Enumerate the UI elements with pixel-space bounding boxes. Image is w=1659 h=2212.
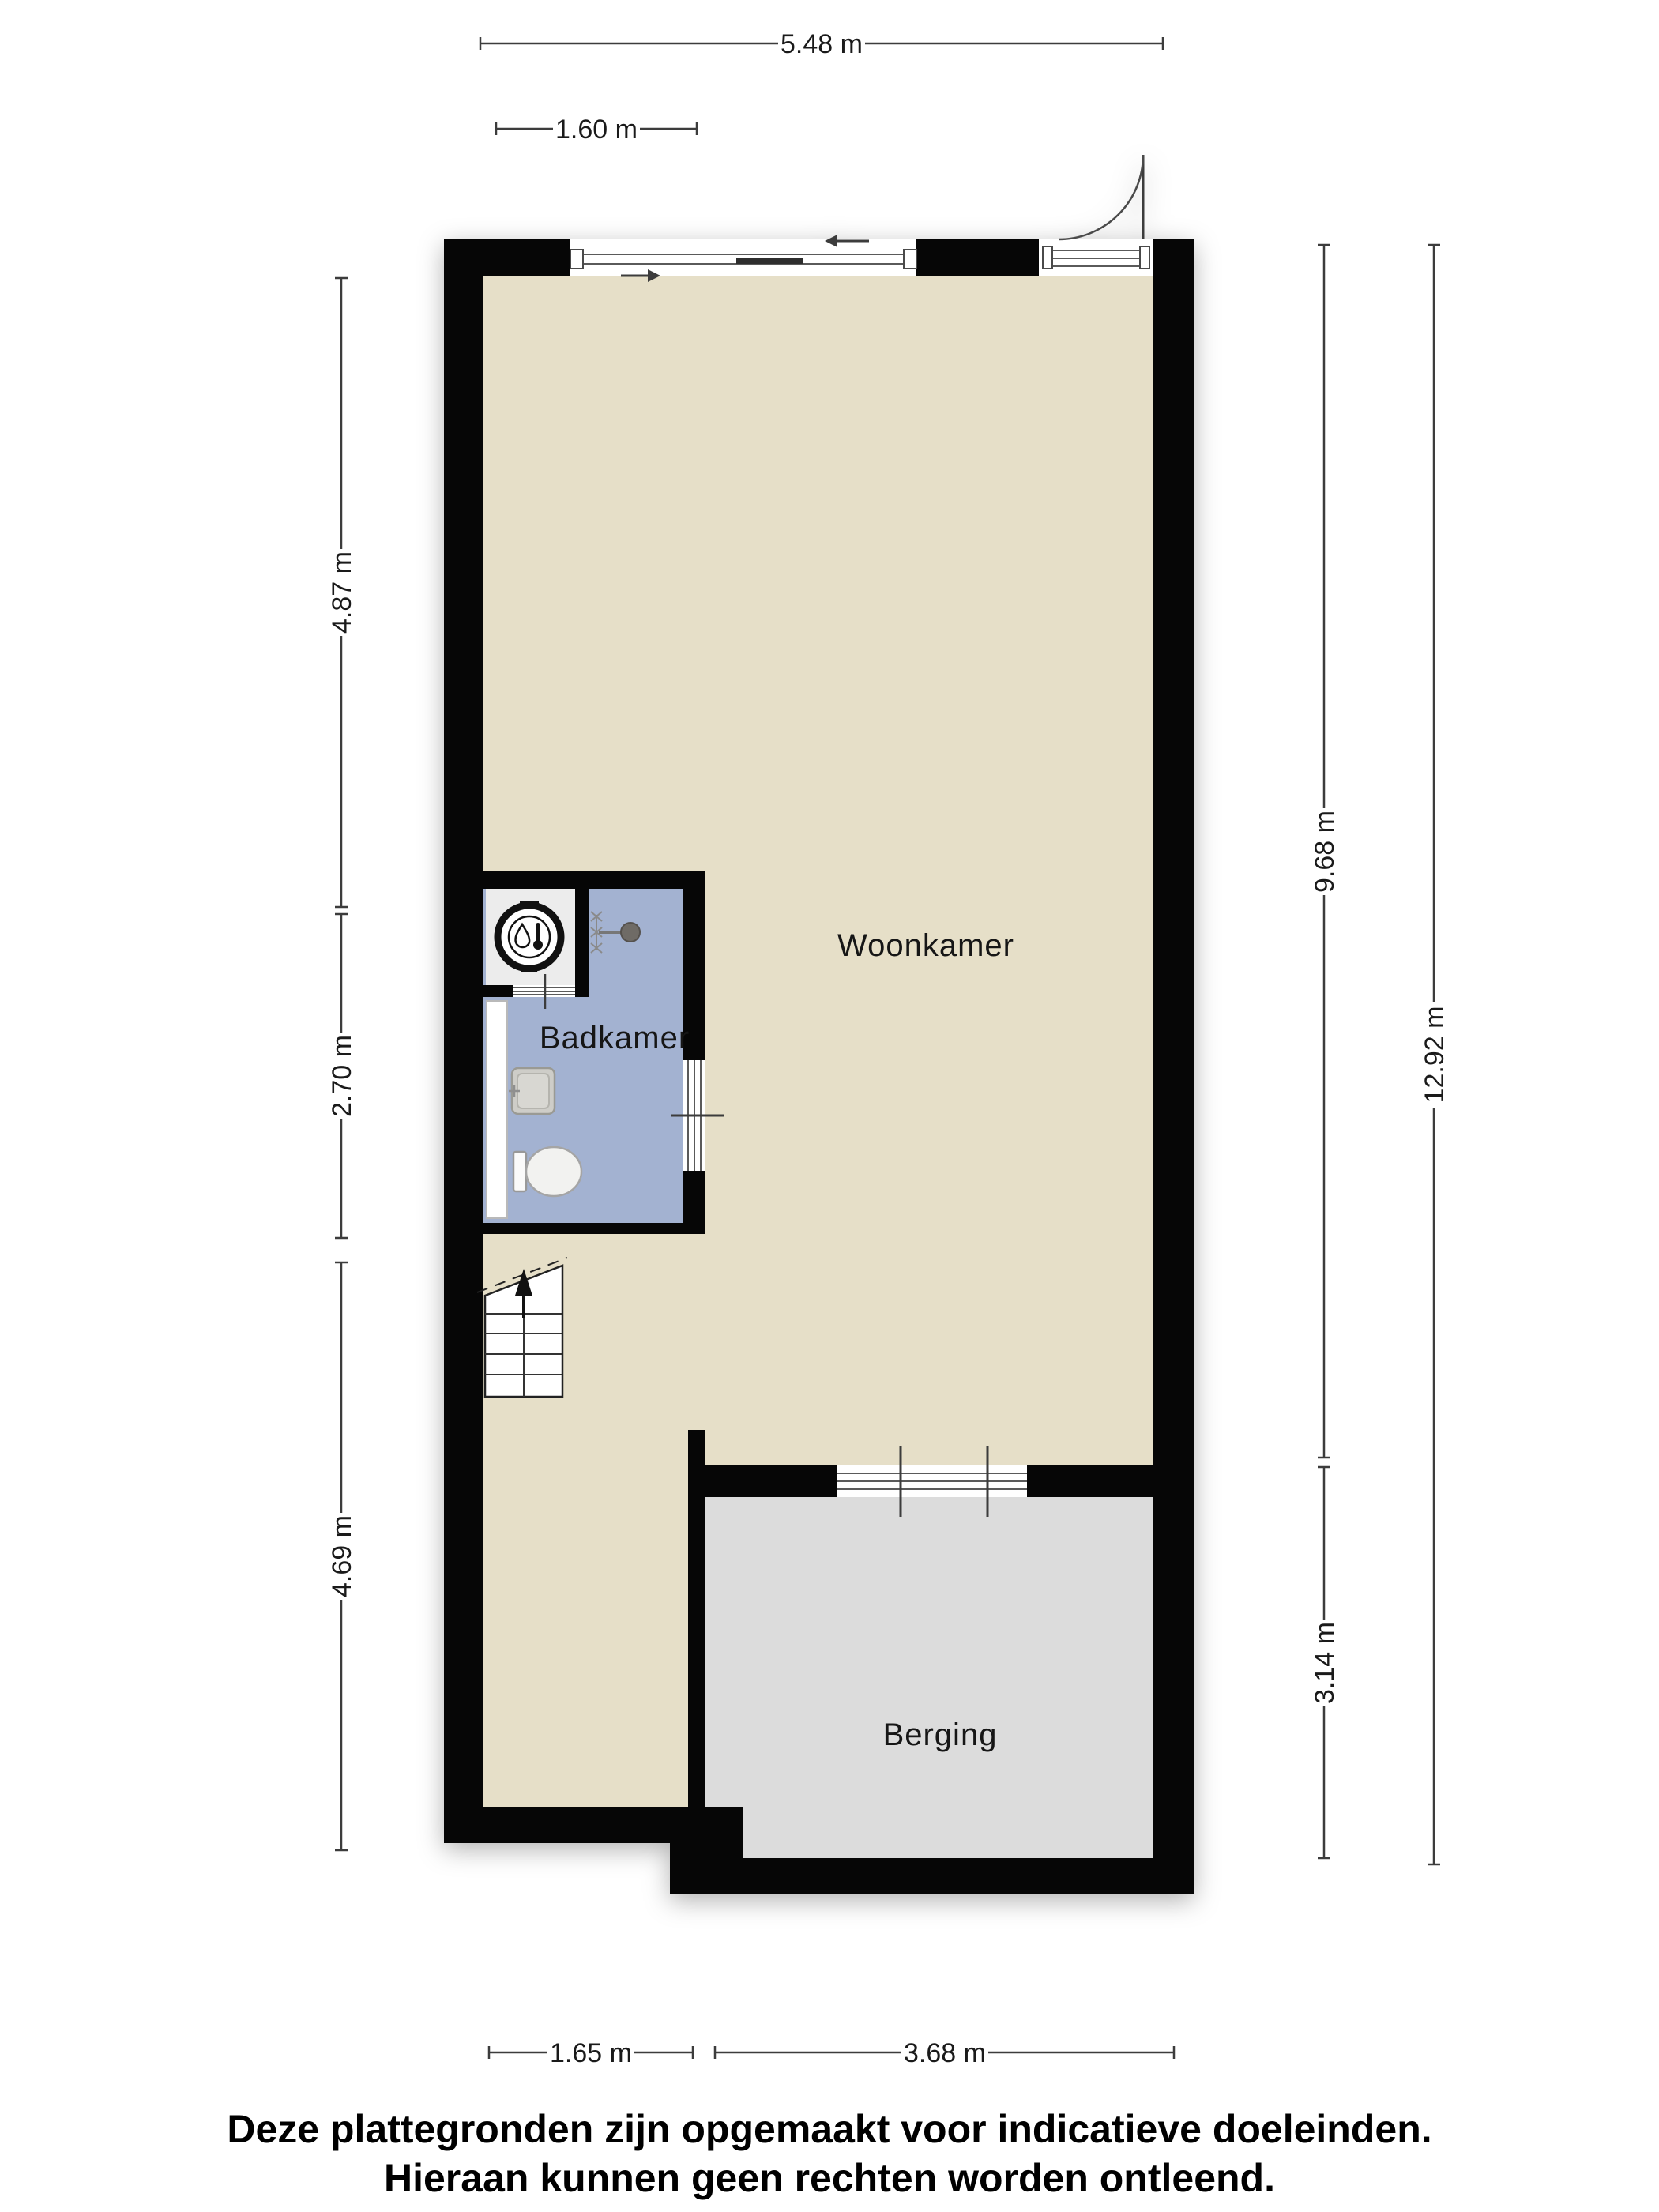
right-wall	[1153, 239, 1194, 1894]
bottom-wall-left	[444, 1807, 705, 1843]
boiler-icon	[498, 901, 561, 972]
sliding-door	[570, 235, 916, 282]
dimension-top-width: 5.48 m	[480, 29, 1163, 59]
bathroom-top-wall	[483, 871, 705, 889]
dimension-bottom-hall: 1.65 m	[489, 2038, 693, 2068]
floorplan-canvas: 5.48 m 1.60 m 4.87 m 2.70 m	[0, 0, 1659, 2212]
open-door-leaf	[487, 1001, 507, 1218]
dimension-left-upper: 4.87 m	[327, 278, 357, 907]
dimension-left-middle: 2.70 m	[327, 914, 357, 1238]
dimension-label: 3.68 m	[904, 2038, 986, 2068]
living-room-floor-right	[705, 871, 1153, 1497]
dimension-right-inner-lower: 3.14 m	[1310, 1467, 1340, 1858]
disclaimer-line-2: Hieraan kunnen geen rechten worden ontle…	[384, 2156, 1275, 2200]
living-room-floor-upper	[483, 276, 1153, 871]
dimension-label: 9.68 m	[1310, 811, 1340, 893]
sink-icon	[509, 1068, 555, 1114]
storage-room-floor	[705, 1497, 1153, 1858]
entry-door	[1039, 155, 1153, 276]
door-swing-arc-icon	[1059, 155, 1143, 239]
dimension-label: 3.14 m	[1310, 1622, 1340, 1704]
boiler-closet-right-wall	[575, 871, 589, 997]
dimension-label: 4.87 m	[327, 551, 357, 634]
toilet-icon	[513, 1147, 581, 1196]
storage-bottom-wall	[670, 1858, 1194, 1894]
dimension-left-lower: 4.69 m	[327, 1262, 357, 1850]
dimension-label: 1.65 m	[550, 2038, 632, 2068]
dimension-label: 12.92 m	[1420, 1006, 1450, 1104]
dimension-bottom-storage: 3.68 m	[715, 2038, 1174, 2068]
top-wall-middle-segment	[916, 239, 1039, 276]
dimension-right-outer: 12.92 m	[1420, 245, 1450, 1864]
dimension-label: 4.69 m	[327, 1515, 357, 1597]
room-label-storage: Berging	[883, 1717, 998, 1752]
room-label-living: Woonkamer	[837, 928, 1014, 963]
bathroom-bottom-wall	[483, 1223, 705, 1234]
disclaimer-line-1: Deze plattegronden zijn opgemaakt voor i…	[227, 2107, 1431, 2151]
left-wall	[444, 239, 483, 1843]
dimension-top-window: 1.60 m	[496, 115, 697, 145]
room-label-bathroom: Badkamer	[540, 1021, 690, 1055]
dimension-label: 2.70 m	[327, 1035, 357, 1117]
dimension-label: 1.60 m	[555, 115, 638, 145]
dimension-right-inner-upper: 9.68 m	[1310, 245, 1340, 1458]
sliding-panel-overlap	[736, 258, 803, 264]
dimension-label: 5.48 m	[781, 29, 863, 59]
